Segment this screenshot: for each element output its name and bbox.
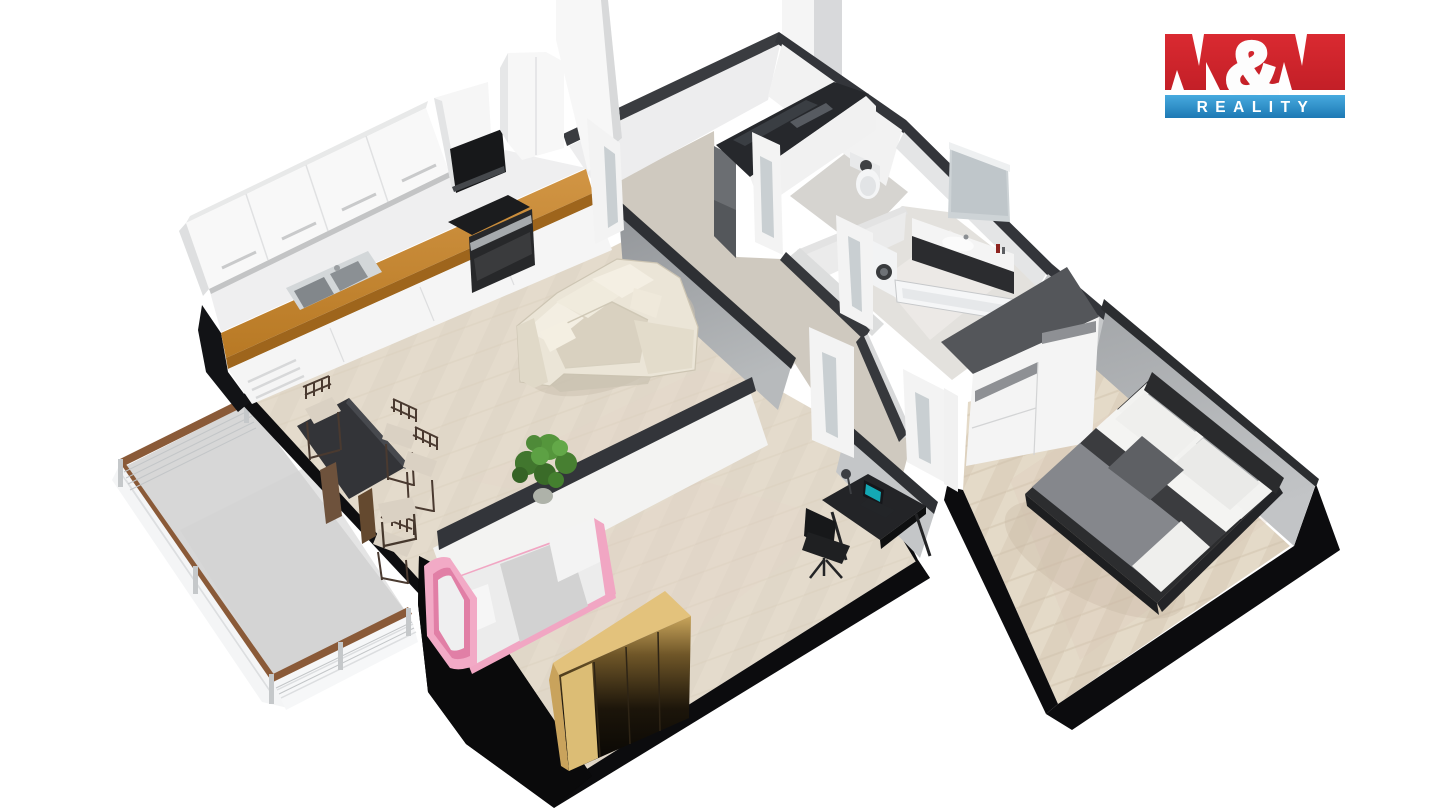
svg-text:REALITY: REALITY <box>1197 99 1316 116</box>
